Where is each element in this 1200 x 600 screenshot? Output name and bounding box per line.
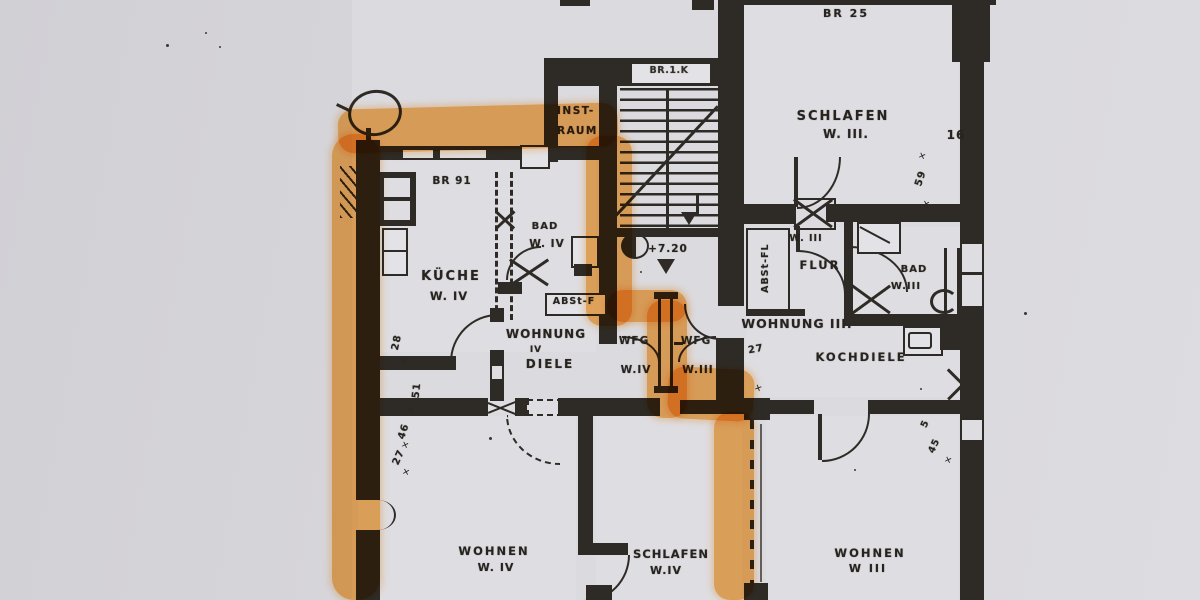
label-wfg-w4: WFG [619,335,649,349]
balcony-label-br91: BR 91 [432,175,471,189]
wall [747,309,805,316]
label-flur-unit: W. III [789,233,822,245]
spine-wall [868,400,966,414]
wall [560,0,590,6]
window-mullion [962,272,982,275]
wall [844,314,968,326]
wall [578,414,593,545]
wall [578,543,628,555]
room-label-wohnen-w3-unit: W III [849,562,887,576]
speckle [854,469,856,471]
wall [744,204,796,224]
dim-27b: 27 [747,342,765,358]
window-pane [384,178,410,197]
speckle [489,437,492,440]
window-slot [962,244,982,306]
window-pane [384,201,410,220]
stove-icon [940,326,966,350]
label-abstfl: ABSt-FL [760,243,772,292]
room-label-bad-w4-unit: W. IV [529,238,564,252]
spine-wall [558,398,660,416]
room-label-wohnung3: WOHNUNG III. [741,316,852,332]
room-label-bad-w4: BAD [532,220,559,233]
direction-arrow-stem [696,194,699,214]
room-label-wohnung4: WOHNUNG [506,327,586,343]
kitchen-fixture [382,250,408,276]
room-label-schlafen-w4-unit: W.IV [650,564,682,578]
balcony-label-br1k: BR.1.K [650,65,689,77]
wall [952,0,990,62]
room-label-schlafen-w3-unit: W. III. [823,127,869,143]
room-label-wohnung4-num: IV [530,345,542,357]
room-label-bad-w3-unit: W.III [891,280,921,293]
highlighter-stroke-top [337,102,618,153]
level-label: +7.20 [648,243,688,257]
window-slot [962,420,982,440]
room-label-wohnen-w3: WOHNEN [834,546,905,561]
wc-icon [930,289,958,314]
balcony-label-br25: BR 25 [823,7,869,21]
spine-wall [376,398,488,416]
dim-16: 16 [947,128,966,144]
room-label-schlafen-w4: SCHLAFEN [633,547,709,562]
kitchen-fixture [382,228,408,252]
dim-51: 51 [410,382,425,399]
speckle [640,271,642,273]
speckle [166,44,169,47]
room-label-schlafen-w3: SCHLAFEN [797,109,890,126]
window-slot [492,366,502,379]
level-marker-icon [657,259,675,274]
highlighter-stroke-left [332,134,380,600]
speckle [219,46,221,48]
wall [368,356,456,370]
room-label-wohnen-w4: WOHNEN [458,544,529,559]
window-wall-line [760,424,762,582]
wall [692,0,714,10]
highlighter-stroke-right [714,412,754,600]
room-label-bad-w3: BAD [901,263,928,276]
speckle [205,32,207,34]
room-label-kueche: KÜCHE [421,269,481,286]
room-label-diele: DIELE [526,357,574,373]
stairwell-wall [718,0,744,306]
window-slot [440,150,486,158]
speckle [920,388,922,390]
sink-basin [908,332,932,349]
room-label-wohnen-w4-unit: W. IV [478,561,515,575]
direction-arrow-icon [681,212,697,225]
room-label-flur: FLUR [800,258,841,273]
partition-dashed [495,172,513,320]
floor-plan-scan: BR 25 SCHLAFEN W. III. 16 59 BR.1.K INST… [0,0,1200,600]
room-label-kochdiele: KOCHDIELE [815,350,906,365]
speckle [1024,312,1027,315]
room-label-kueche-unit: W. IV [430,289,468,304]
